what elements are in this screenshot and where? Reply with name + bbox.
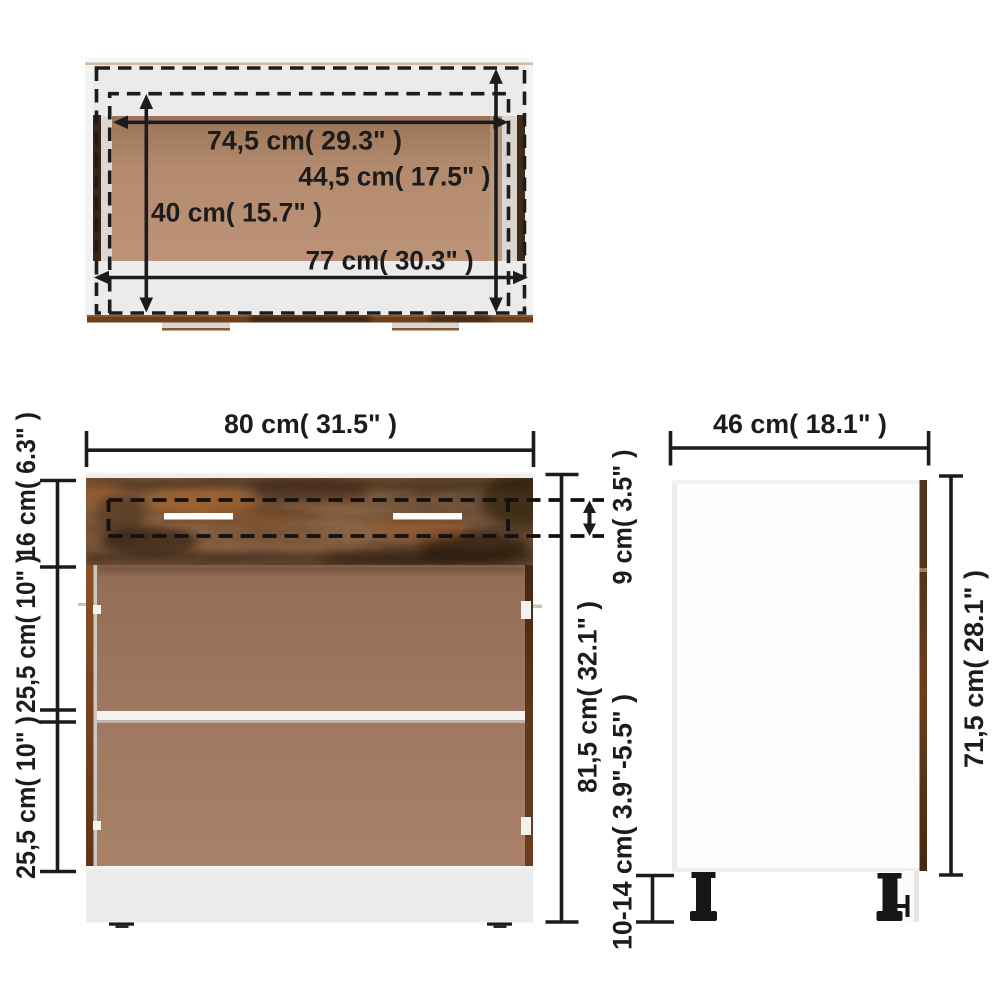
svg-text:74,5 cm( 29.3" ): 74,5 cm( 29.3" ) [207,126,402,156]
svg-text:77 cm( 30.3" ): 77 cm( 30.3" ) [306,246,474,276]
svg-text:46 cm( 18.1" ): 46 cm( 18.1" ) [713,409,887,439]
svg-text:81,5 cm( 32.1" ): 81,5 cm( 32.1" ) [573,601,603,793]
svg-text:25,5 cm( 10" ): 25,5 cm( 10" ) [11,555,41,713]
svg-text:9 cm( 3.5" ): 9 cm( 3.5" ) [608,450,638,585]
svg-text:80 cm( 31.5" ): 80 cm( 31.5" ) [224,409,397,439]
svg-text:40 cm( 15.7" ): 40 cm( 15.7" ) [151,198,322,228]
svg-text:10-14 cm( 3.9"-5.5" ): 10-14 cm( 3.9"-5.5" ) [608,694,638,950]
svg-text:71,5 cm( 28.1" ): 71,5 cm( 28.1" ) [959,570,989,768]
svg-text:25,5 cm( 10" ): 25,5 cm( 10" ) [11,716,41,879]
svg-text:16 cm( 6.3" ): 16 cm( 6.3" ) [11,412,41,560]
svg-text:44,5 cm( 17.5" ): 44,5 cm( 17.5" ) [298,162,490,192]
